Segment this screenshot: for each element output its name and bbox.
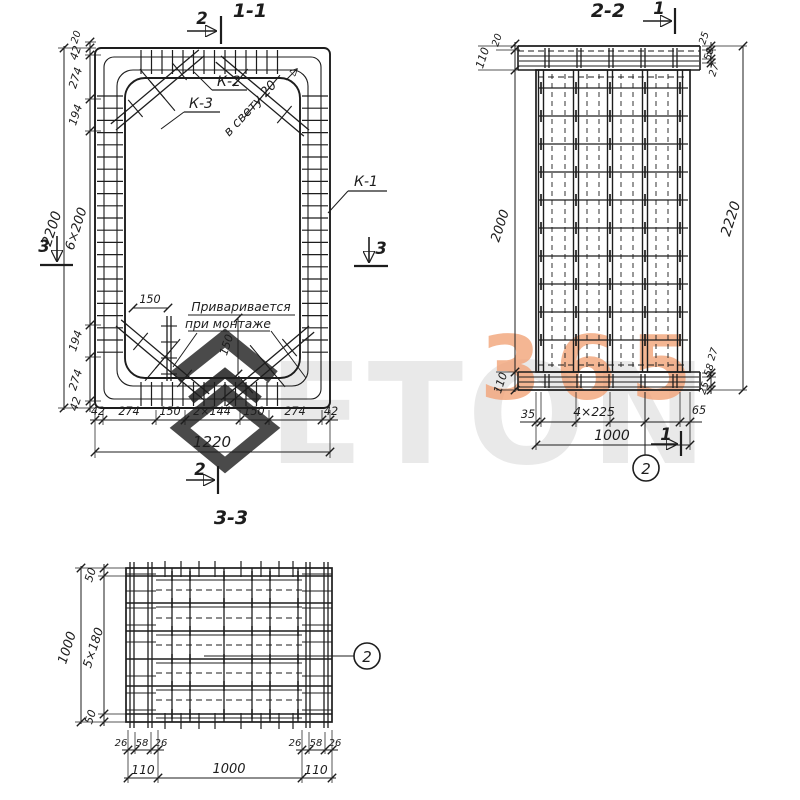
s33-dim-bottom-2: 110 — [304, 763, 328, 777]
s22-dim-bottom-2: 65 — [692, 404, 706, 417]
s11-dim-bottom-4: 150 — [243, 405, 264, 418]
s33-callout-label: 2 — [362, 648, 372, 666]
s22-dim-right-overall: 2220 — [718, 199, 744, 238]
s11-label-k1: К-1 — [354, 174, 378, 190]
s22-dim-bottom-1: 4×225 — [573, 405, 615, 419]
s11-cut-top-label: 2 — [196, 9, 207, 28]
s11-dim-bottom-5: 274 — [284, 405, 305, 418]
s22-cut-top-label: 1 — [653, 0, 664, 18]
s11-opening — [125, 78, 300, 378]
s11-dim-left-2: 194 — [66, 103, 85, 127]
s11-dim-left-cover: 20 — [69, 29, 83, 45]
s33-dim-brg-0: 26 — [289, 738, 302, 749]
s11-dim-bottom-1: 274 — [118, 405, 139, 418]
s11-dim-stub-h: 150 — [139, 293, 160, 306]
s11-dim-left-1: 274 — [66, 66, 85, 90]
s11-cut-bottom-label: 2 — [194, 460, 205, 479]
s22-dim-bottom-overall: 1000 — [594, 428, 630, 444]
s33-dim-bottom-1: 1000 — [212, 762, 245, 777]
s22-callout-label: 2 — [641, 460, 651, 478]
s11-weld-note-line1: Приваривается — [191, 300, 290, 314]
s33-rebar-grid — [126, 561, 332, 729]
s33-dim-left-0: 50 — [82, 566, 99, 584]
s11-dim-left-5: 274 — [66, 368, 85, 392]
s22-dim-left-2: 2000 — [488, 208, 512, 244]
drawing-sheet: ETON 365 — [0, 0, 800, 800]
s33-dim-left-1: 5×180 — [80, 626, 106, 670]
s22-cut-bottom-label: 1 — [660, 425, 671, 444]
s11-label-k3: К-3 — [189, 96, 213, 112]
s11-label-k2: К-2 — [217, 74, 241, 90]
s11-dim-left-overall: 2200 — [39, 209, 65, 248]
s11-dim-left-3: 6×200 — [63, 206, 91, 252]
drawing-canvas: ETON 365 — [0, 0, 800, 800]
s11-cut-right-label: 3 — [375, 239, 386, 258]
s22-dim-bottom-0: 35 — [521, 408, 535, 421]
s11-dim-bottom-overall: 1220 — [193, 433, 231, 451]
s22-dim-left-1: 110 — [473, 46, 492, 70]
s11-title: 1-1 — [233, 0, 267, 22]
s22-dim-rt-0: 25 — [697, 30, 711, 46]
s11-dim-bottom-2: 150 — [159, 405, 180, 418]
s33-dim-bottom-0: 110 — [131, 763, 155, 777]
s11-dim-left-4: 194 — [66, 329, 85, 353]
s33-callout — [204, 643, 380, 669]
s33-title: 3-3 — [214, 507, 248, 529]
s33-dim-blg-0: 26 — [115, 738, 128, 749]
s22-title: 2-2 — [591, 0, 625, 22]
s11-dim-left-6: 42 — [67, 395, 84, 413]
s33-dim-left-2: 50 — [82, 708, 99, 726]
s33-dim-left-overall: 1000 — [55, 630, 79, 666]
s11-dim-left-0: 42 — [67, 44, 84, 62]
s11-dim-bottom-3: 2×144 — [193, 405, 231, 418]
s11-weld-note-line2: при монтаже — [185, 317, 271, 331]
s11-corner-braces-seg — [140, 69, 175, 111]
